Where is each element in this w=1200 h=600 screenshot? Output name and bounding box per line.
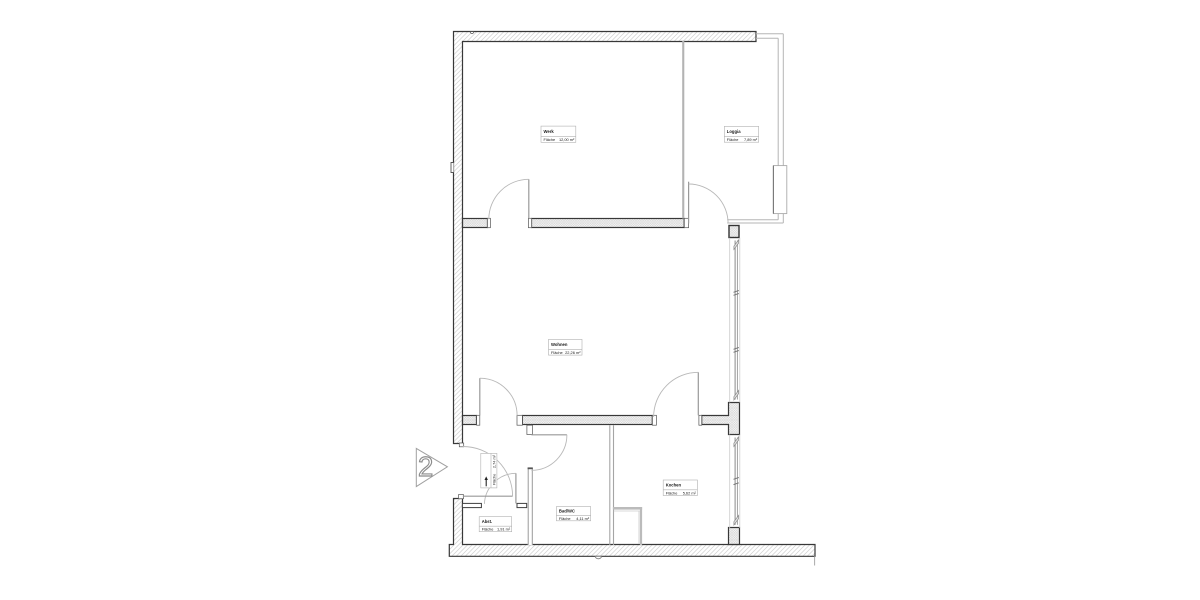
svg-text:Wohnen: Wohnen <box>551 342 568 347</box>
svg-text:2,74 m²: 2,74 m² <box>492 454 497 468</box>
svg-text:Abst.: Abst. <box>482 519 492 524</box>
svg-text:Werk: Werk <box>544 129 555 134</box>
svg-text:Fläche: Fläche <box>559 516 571 521</box>
svg-text:Fläche: Fläche <box>666 490 678 495</box>
svg-text:Fläche: Fläche <box>492 474 497 486</box>
svg-text:Fläche: Fläche <box>482 527 494 532</box>
svg-text:Kochen: Kochen <box>666 483 682 488</box>
svg-text:5,62 m²: 5,62 m² <box>683 490 697 495</box>
svg-text:22,26 m²: 22,26 m² <box>565 350 581 355</box>
svg-text:Fläche: Fläche <box>551 350 563 355</box>
svg-text:2: 2 <box>418 451 433 482</box>
svg-text:12,00 m²: 12,00 m² <box>559 137 575 142</box>
svg-text:1,91 m²: 1,91 m² <box>497 527 511 532</box>
svg-text:Loggia: Loggia <box>727 129 741 134</box>
svg-text:7,89 m²: 7,89 m² <box>744 137 758 142</box>
svg-text:Bad/WC: Bad/WC <box>559 509 575 514</box>
svg-text:Fläche: Fläche <box>544 137 556 142</box>
svg-text:4,11 m²: 4,11 m² <box>576 516 590 521</box>
svg-text:Fläche: Fläche <box>727 137 739 142</box>
